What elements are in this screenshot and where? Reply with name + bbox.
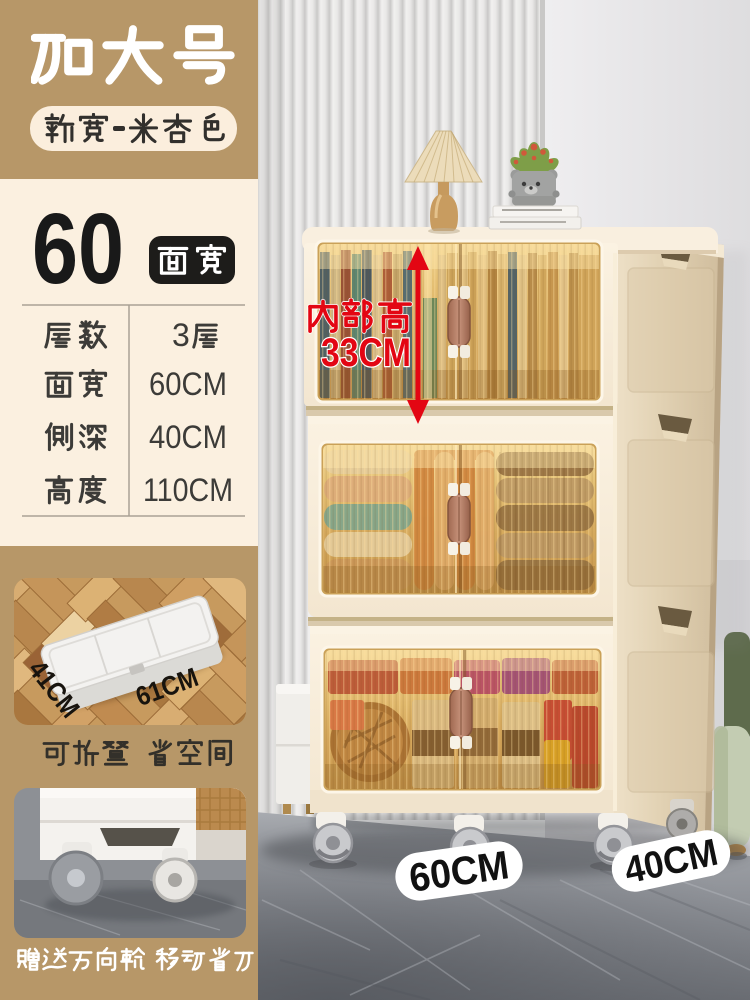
svg-text:3: 3 <box>172 317 190 353</box>
svg-text:60: 60 <box>32 193 124 305</box>
svg-text:110CM: 110CM <box>143 472 233 508</box>
svg-text:60CM: 60CM <box>149 366 227 402</box>
svg-text:40CM: 40CM <box>149 419 227 455</box>
svg-text:33CM: 33CM <box>321 331 411 375</box>
